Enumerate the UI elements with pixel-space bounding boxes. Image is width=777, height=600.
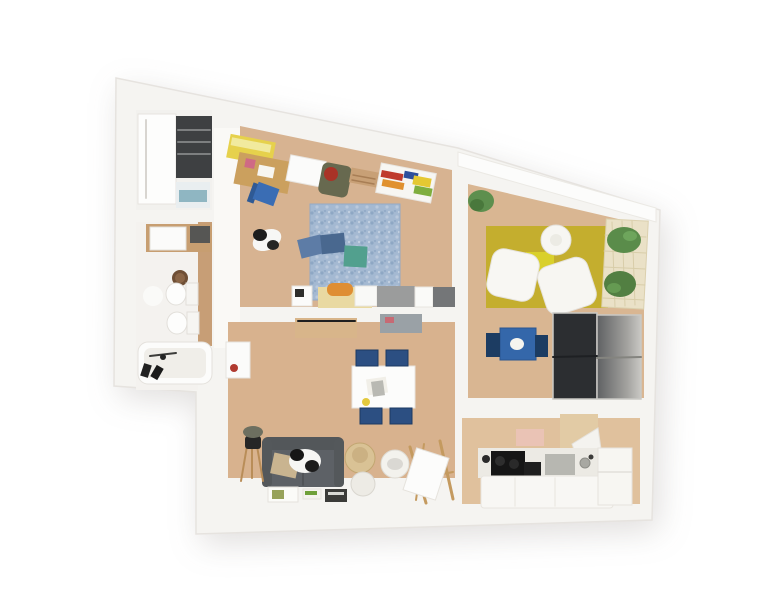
tub-faucet [160, 354, 166, 360]
dresser-white-2 [415, 287, 433, 307]
plant-stand-foliage [243, 426, 263, 438]
table-white-toy [510, 338, 524, 350]
pet-bed-cat [387, 458, 403, 470]
sofa-arm-right [334, 439, 344, 487]
gray-mat [380, 314, 422, 333]
dining-chair-3 [360, 408, 382, 424]
stove-burner-2 [509, 459, 519, 469]
dining-chair-2 [386, 350, 408, 366]
floor-plan-render [0, 0, 777, 600]
wardrobe-seam-right [597, 357, 641, 358]
pink-wall-art [516, 429, 544, 446]
white-pouf-1 [485, 247, 542, 304]
bidet-tank [187, 312, 199, 334]
dining-chair-4 [390, 408, 412, 424]
nightstand-screen [295, 289, 304, 297]
laundry-room [138, 114, 212, 208]
cabinet-red-item [230, 364, 238, 372]
teal-blanket [343, 245, 367, 267]
table-gray-item [371, 380, 385, 397]
dining-chair-1 [356, 350, 378, 366]
floor-magazine-3 [325, 489, 347, 502]
trellis-plant-1 [607, 227, 641, 253]
sofa-dog-patch-2 [305, 460, 319, 472]
sink [150, 227, 186, 250]
bedroom-dog-patch-2 [267, 240, 279, 250]
kitchen-sink [580, 458, 590, 468]
white-basket [351, 472, 375, 496]
kettle [482, 455, 490, 463]
sink-faucet [589, 455, 594, 460]
wardrobe-seam-left [553, 356, 597, 357]
orange-pillow [327, 283, 353, 296]
gray-appliance [545, 454, 575, 475]
corner-plant-shade [470, 199, 484, 211]
bidet-bowl [167, 312, 187, 334]
trellis-plant-2-highlight [607, 283, 621, 293]
stool-top [175, 273, 185, 283]
wall-cabinet [226, 342, 250, 378]
sofa-back [262, 437, 344, 450]
dark-shelf-unit [176, 116, 212, 178]
washer-cabinet [138, 114, 176, 204]
toilet-tank [186, 283, 198, 305]
round-table-center [550, 234, 562, 246]
dresser-white-1 [355, 286, 377, 306]
dresser-gray-1 [377, 286, 415, 307]
armchair-red-cushion [324, 167, 338, 181]
trellis-plant-1-highlight [623, 231, 637, 241]
fridge-column [598, 448, 632, 505]
denim-pillow-2 [320, 233, 346, 254]
bedroom-dog-patch-1 [253, 229, 267, 241]
linen-towels [179, 190, 207, 202]
play-chair-left [486, 333, 500, 357]
counter-front [481, 476, 613, 508]
oven-black-item [524, 462, 541, 476]
dresser-gray-2 [433, 287, 455, 307]
trellis-plant-2 [604, 271, 636, 297]
desk-item-pink [244, 158, 256, 169]
round-bath-rug [143, 286, 163, 306]
hall-floor [214, 128, 240, 348]
floor-magazine-2-stripe [305, 491, 317, 495]
pink-shoes [385, 317, 394, 323]
olive-armchair [317, 161, 353, 198]
stove-burner-1 [495, 456, 505, 466]
floor-plan-svg [0, 0, 777, 600]
vanity-dark-top [190, 226, 210, 243]
woven-basket-opening [352, 447, 368, 463]
floor-magazine-1-image [272, 490, 284, 499]
play-chair-right [535, 335, 548, 357]
toilet-bowl [166, 283, 186, 305]
floor-magazine-3-stripe [328, 492, 344, 495]
table-yellow-item [362, 398, 370, 406]
sofa-dog-patch-1 [290, 449, 304, 461]
